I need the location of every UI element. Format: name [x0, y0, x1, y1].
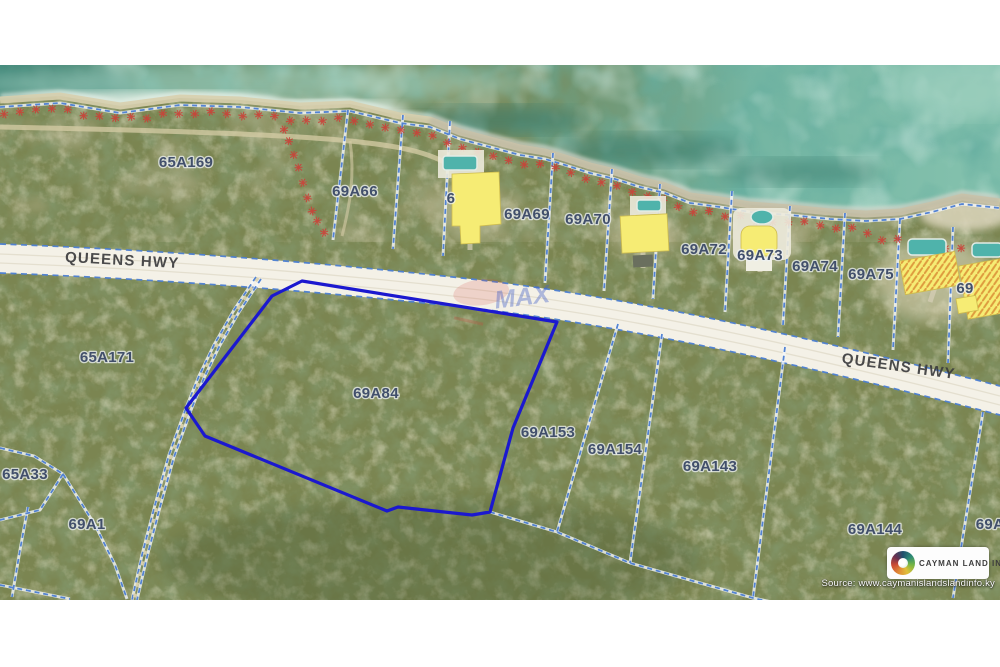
cayman-land-info-logo: CAYMAN LAND INFO	[887, 547, 989, 579]
parcel-label-69a154: 69A154	[588, 441, 643, 458]
parcel-label-69a70: 69A70	[565, 211, 611, 228]
parcel-label-69a74: 69A74	[792, 258, 838, 275]
nautilus-logo-icon	[891, 551, 915, 575]
parcel-label-69a143: 69A143	[683, 458, 737, 475]
parcel-label-partial-6: 6	[447, 190, 456, 207]
parcel-label-partial-69a: 69A	[976, 516, 1000, 533]
parcel-label-69a72: 69A72	[681, 241, 727, 258]
parcel-label-65a171: 65A171	[80, 349, 134, 366]
parcel-label-69a144: 69A144	[848, 521, 903, 538]
parcel-label-69a73: 69A73	[737, 247, 783, 264]
parcel-label-69a66: 69A66	[332, 183, 378, 200]
parcel-label-69a84: 69A84	[353, 385, 399, 402]
parcel-label-69a69: 69A69	[504, 206, 550, 223]
parcel-label-69a75: 69A75	[848, 266, 894, 283]
logo-text: CAYMAN LAND INFO	[919, 559, 1000, 568]
map-image: MAX 65A169 69A66 6 69A69 69A70 69A72 69A…	[0, 65, 1000, 600]
parcel-label-partial-69: 69	[956, 280, 973, 297]
source-credit: Source: www.caymanislandslandinfo.ky	[821, 578, 995, 589]
parcel-label-69a153: 69A153	[521, 424, 575, 441]
parcel-label-69a1: 69A1	[68, 516, 105, 533]
screenshot-page: MAX 65A169 69A66 6 69A69 69A70 69A72 69A…	[0, 0, 1000, 667]
pool	[443, 156, 477, 170]
parcel-label-65a169: 65A169	[159, 154, 213, 171]
building	[620, 214, 669, 253]
map-canvas[interactable]: MAX 65A169 69A66 6 69A69 69A70 69A72 69A…	[0, 65, 1000, 600]
parcel-label-65a33: 65A33	[2, 466, 48, 483]
